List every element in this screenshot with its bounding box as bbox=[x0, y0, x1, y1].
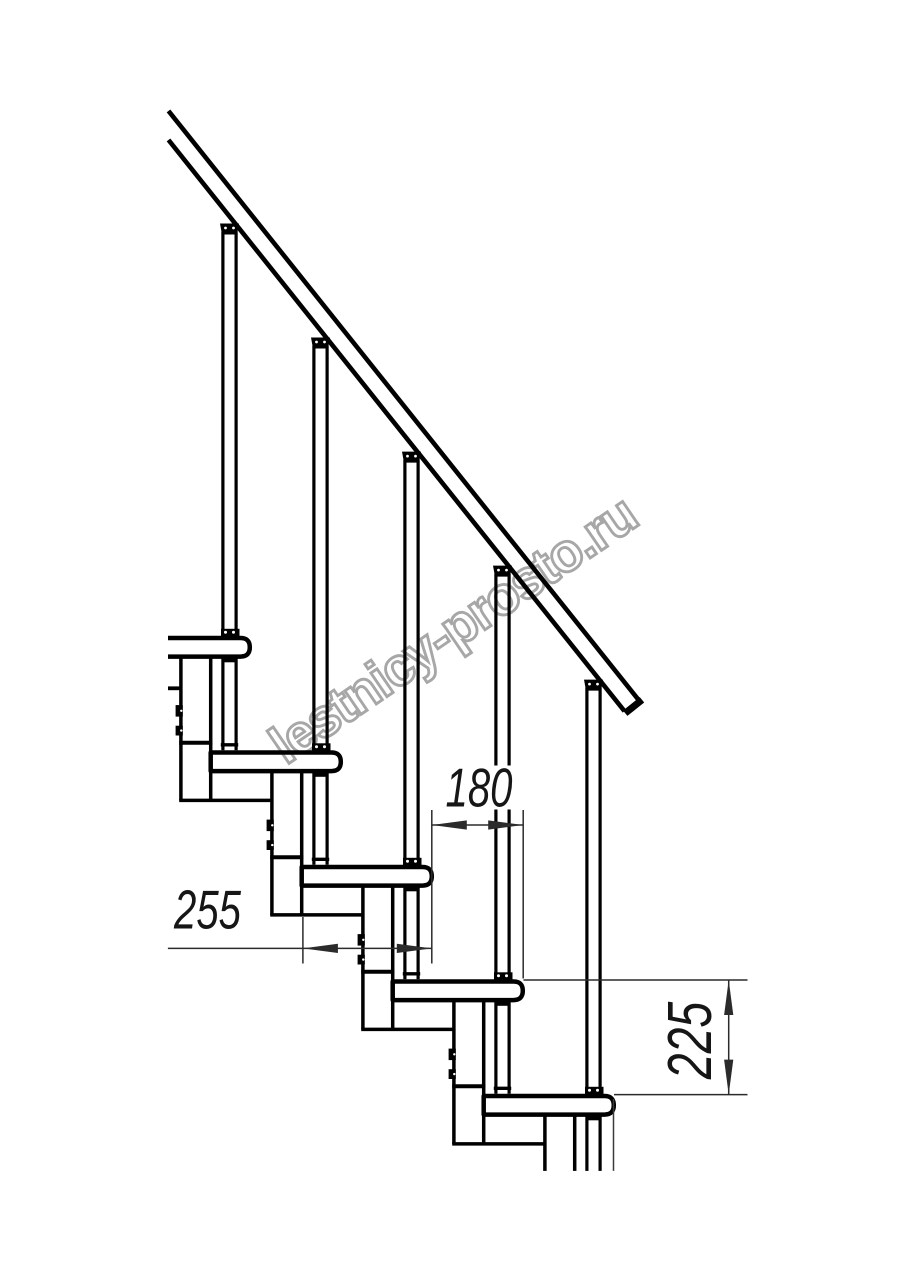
svg-text:lestnicy-prosto.ru: lestnicy-prosto.ru bbox=[259, 484, 647, 775]
svg-text:225: 225 bbox=[654, 1001, 724, 1080]
svg-text:180: 180 bbox=[446, 757, 513, 819]
svg-text:255: 255 bbox=[173, 879, 241, 941]
